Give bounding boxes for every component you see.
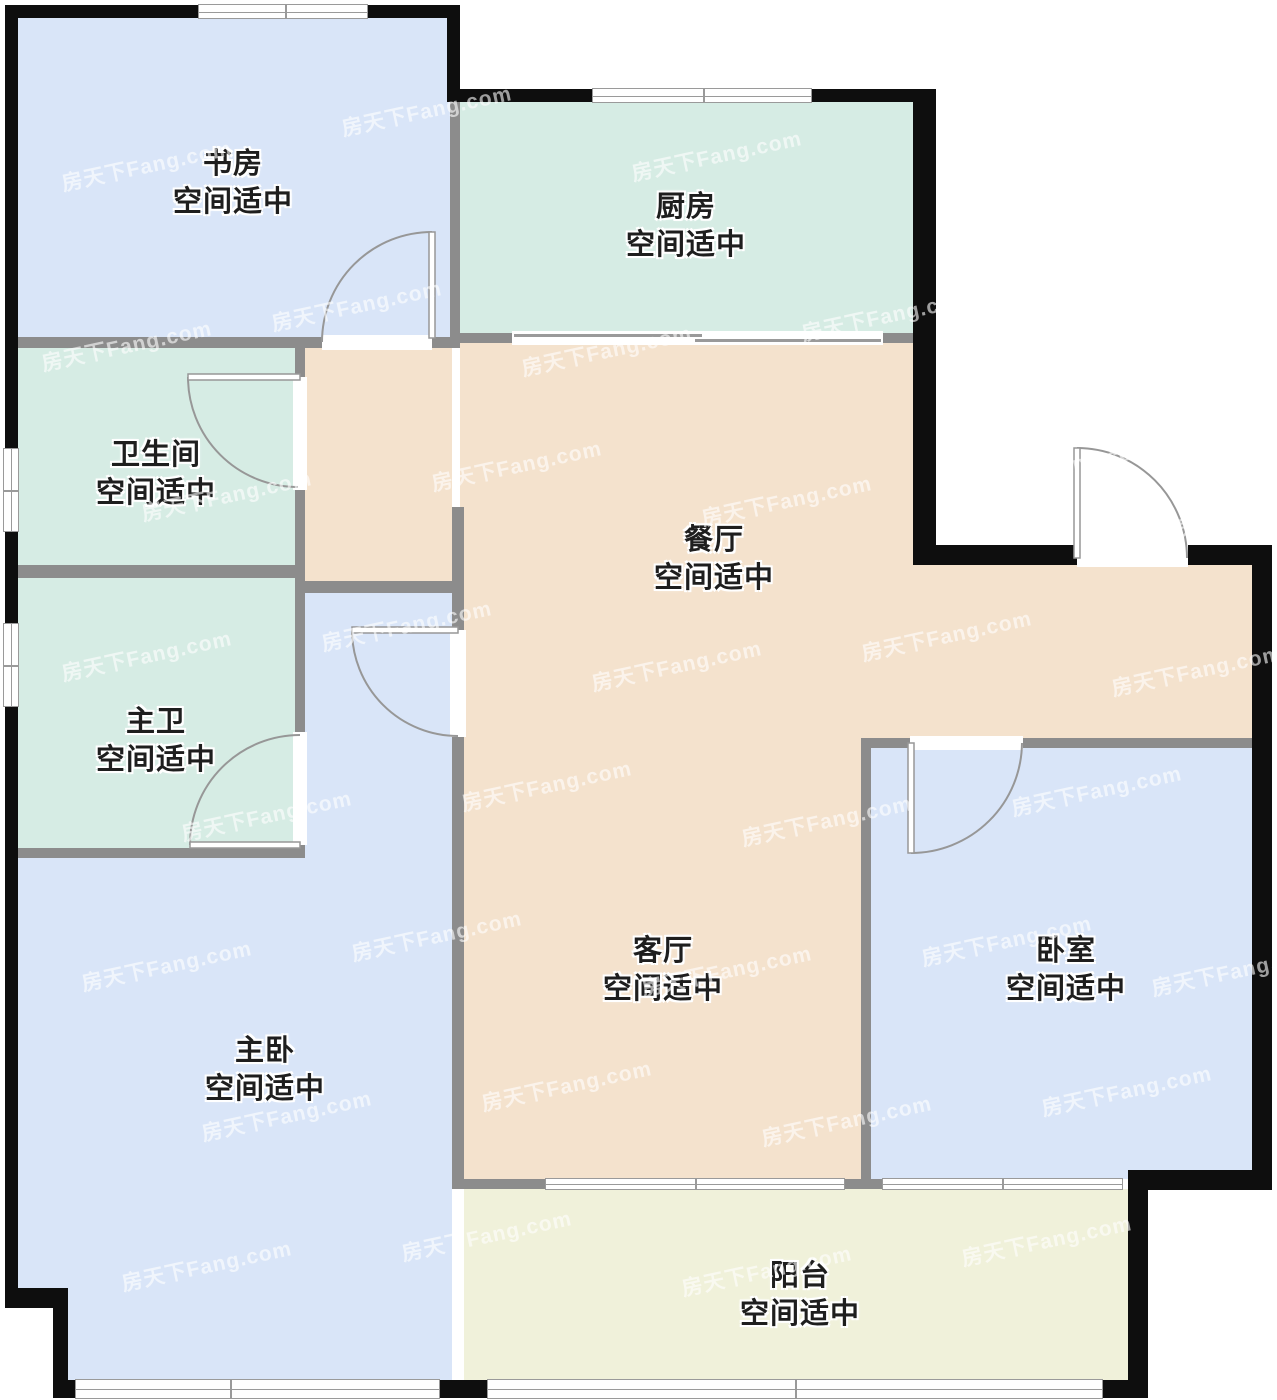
room-name: 书房: [173, 145, 293, 183]
room-master-bedroom-fill-lower: [68, 1288, 452, 1380]
kitchen-slider-opening: [512, 331, 883, 345]
room-master-corridor-fill: [305, 593, 452, 858]
floor-plan: 书房 空间适中 厨房 空间适中 卫生间 空间适中 餐厅 空间适中 主卫 空间适中…: [0, 0, 1277, 1400]
room-note: 空间适中: [654, 559, 774, 597]
bedroom-door-opening: [910, 736, 1023, 750]
room-name: 卫生间: [96, 436, 216, 474]
kitchen-slider-panel-1: [514, 334, 702, 337]
kitchen-top-window: [592, 88, 812, 103]
wall-exterior-right: [1252, 545, 1272, 1190]
wall-exterior-kitchen-right: [913, 89, 936, 565]
room-note: 空间适中: [603, 970, 723, 1008]
master-bedroom-bottom-window: [75, 1379, 440, 1399]
wall-kitchen-bottom-left: [450, 333, 512, 343]
room-label-bedroom: 卧室 空间适中: [1006, 932, 1126, 1008]
room-label-balcony: 阳台 空间适中: [740, 1257, 860, 1333]
room-label-master-bath: 主卫 空间适中: [96, 703, 216, 779]
master-bath-left-window: [3, 623, 19, 707]
entry-door-swing: [1074, 448, 1187, 558]
fang-watermark: 房天下Fang.com: [979, 432, 1155, 497]
wall-bedroom-top-right: [1023, 738, 1252, 748]
room-label-study: 书房 空间适中: [173, 145, 293, 221]
wall-bathroom-divider: [18, 565, 305, 578]
room-note: 空间适中: [96, 474, 216, 512]
room-hall-fill: [305, 348, 452, 581]
room-note: 空间适中: [740, 1295, 860, 1333]
wall-exterior-balcony-right: [1128, 1170, 1148, 1398]
fang-watermark: 房天下Fang.com: [949, 92, 1125, 157]
room-name: 厨房: [626, 188, 746, 226]
balcony-bottom-window: [487, 1379, 1103, 1399]
room-name: 餐厅: [654, 521, 774, 559]
fang-watermark: 房天下Fang.com: [1149, 147, 1277, 212]
bathroom-left-window: [3, 448, 19, 532]
room-name: 主卧: [205, 1032, 325, 1070]
wall-kitchen-bottom-right: [883, 333, 913, 343]
study-top-window: [198, 4, 368, 19]
wall-master-living: [452, 737, 464, 1187]
wall-corridor-top: [295, 581, 464, 593]
room-name: 卧室: [1006, 932, 1126, 970]
entry-door-opening: [1077, 543, 1188, 567]
master-bath-door-opening: [293, 732, 307, 845]
room-dining-wide-fill: [460, 565, 1252, 738]
room-note: 空间适中: [626, 226, 746, 264]
wall-exterior-step: [447, 5, 460, 102]
wall-bedroom-top-left: [861, 738, 910, 748]
room-label-bathroom: 卫生间 空间适中: [96, 436, 216, 512]
bedroom-balcony-window: [882, 1178, 1123, 1190]
room-label-living: 客厅 空间适中: [603, 932, 723, 1008]
fang-watermark: 房天下Fang.com: [1059, 317, 1235, 382]
wall-master-bath-right-upper: [295, 578, 305, 735]
wall-living-bedroom: [861, 738, 871, 1181]
room-note: 空间适中: [1006, 970, 1126, 1008]
room-label-kitchen: 厨房 空间适中: [626, 188, 746, 264]
room-name: 客厅: [603, 932, 723, 970]
wall-kitchen-left: [450, 102, 460, 343]
wall-exterior-entry-left: [913, 545, 1077, 565]
corridor-door-opening: [450, 630, 466, 737]
wall-bathroom-right-upper: [295, 337, 305, 377]
room-name: 阳台: [740, 1257, 860, 1295]
wall-exterior-left-step-v: [53, 1288, 68, 1398]
kitchen-slider-panel-2: [695, 339, 881, 342]
wall-living-balcony-left: [452, 1179, 545, 1189]
room-note: 空间适中: [173, 183, 293, 221]
wall-exterior-bedroom-bottom: [1128, 1170, 1272, 1190]
bathroom-door-opening: [293, 377, 307, 490]
living-balcony-window: [545, 1178, 845, 1190]
room-label-master-bedroom: 主卧 空间适中: [205, 1032, 325, 1108]
wall-bathroom-right-lower: [295, 490, 305, 575]
room-name: 主卫: [96, 703, 216, 741]
fang-watermark: 房天下Fang.com: [1159, 1247, 1277, 1312]
wall-study-bottom: [18, 337, 322, 348]
study-door-opening: [322, 335, 432, 350]
room-label-dining: 餐厅 空间适中: [654, 521, 774, 597]
room-note: 空间适中: [96, 741, 216, 779]
wall-living-balcony-stub: [845, 1179, 882, 1189]
room-note: 空间适中: [205, 1070, 325, 1108]
wall-master-bath-bottom: [18, 848, 305, 858]
wall-corridor-right-upper: [452, 507, 464, 630]
fang-watermark: 房天下Fang.com: [1174, 477, 1277, 542]
